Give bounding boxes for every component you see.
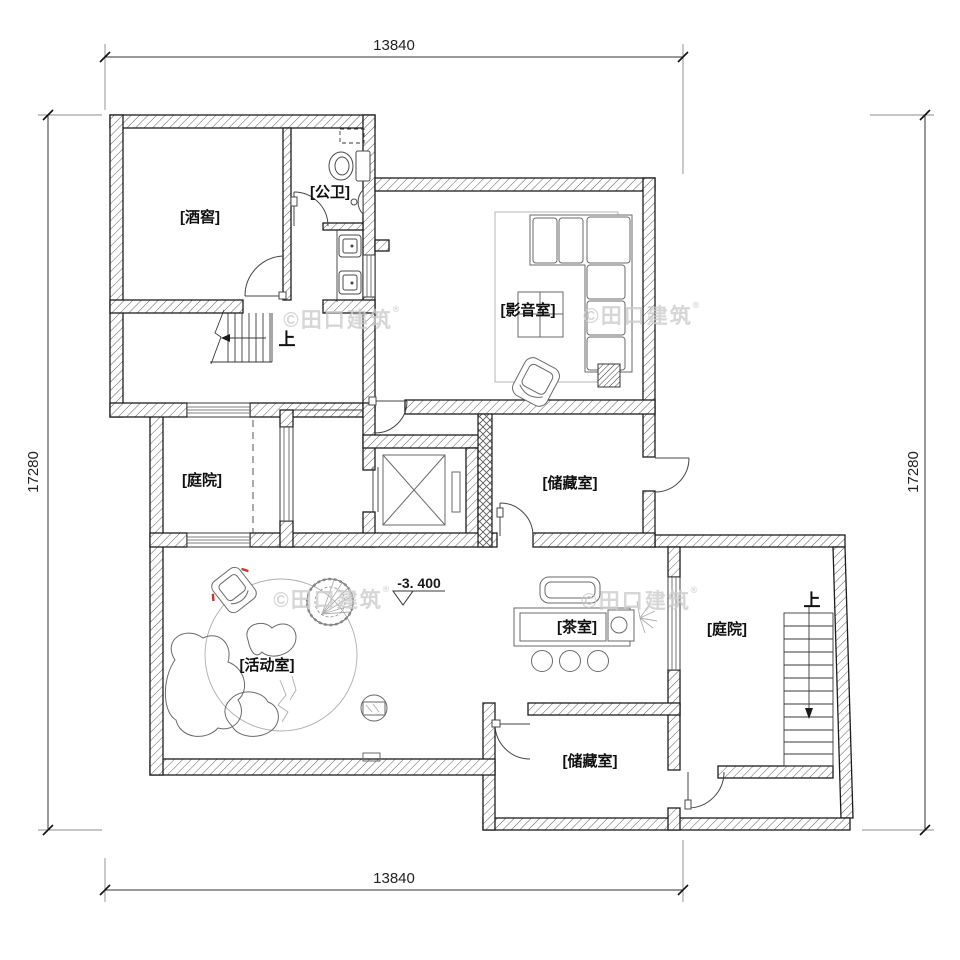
courtyard-stairs-up-label: 上 <box>804 591 821 610</box>
room-label-activity-room: [活动室] <box>240 656 295 674</box>
stairs-up-label: 上 <box>279 330 296 349</box>
room-label-courtyard-right: [庭院] <box>707 620 747 638</box>
dim-left-value: 17280 <box>25 451 42 493</box>
watermark: ©田口建筑® <box>273 584 389 612</box>
elevator-counterweight <box>452 472 460 512</box>
svg-text:©田口建筑: ©田口建筑 <box>283 308 392 332</box>
dim-top-value: 13840 <box>373 37 415 54</box>
watermark: ©田口建筑® <box>283 304 399 332</box>
svg-text:©田口建筑: ©田口建筑 <box>581 589 690 613</box>
window-courtyard-bottom <box>187 533 250 547</box>
dim-bottom-value: 13840 <box>373 870 415 887</box>
room-label-storage-upper: [储藏室] <box>543 474 598 492</box>
window-media-left <box>363 255 375 297</box>
floor-plan-page: 上 上 <box>0 0 960 960</box>
room-label-media-room: [影音室] <box>501 301 556 319</box>
speaker-icon <box>598 364 620 387</box>
svg-text:®: ® <box>691 585 698 595</box>
room-label-courtyard-left: [庭院] <box>182 471 222 489</box>
watermark: ©田口建筑® <box>583 300 699 328</box>
svg-text:©田口建筑: ©田口建筑 <box>583 304 692 328</box>
window-courtyard-top <box>187 403 250 417</box>
room-label-storage-lower: [储藏室] <box>563 752 618 770</box>
room-label-tea-room: [茶室] <box>557 618 597 636</box>
svg-text:©田口建筑: ©田口建筑 <box>273 588 382 612</box>
insulated-wall <box>478 414 492 547</box>
svg-text:®: ® <box>383 584 390 594</box>
room-label-public-bath: [公卫] <box>310 184 350 201</box>
room-label-wine-cellar: [酒窖] <box>180 208 220 226</box>
floor-plan-drawing: 上 上 <box>0 0 960 960</box>
toilet-icon <box>329 151 370 181</box>
svg-text:®: ® <box>393 304 400 314</box>
dim-right-value: 17280 <box>905 451 922 493</box>
tea-stools <box>532 651 609 672</box>
svg-text:®: ® <box>693 300 700 310</box>
watermark: ©田口建筑® <box>581 585 697 613</box>
elevation-value: -3. 400 <box>397 575 441 591</box>
window-courtyard-right <box>280 427 293 521</box>
